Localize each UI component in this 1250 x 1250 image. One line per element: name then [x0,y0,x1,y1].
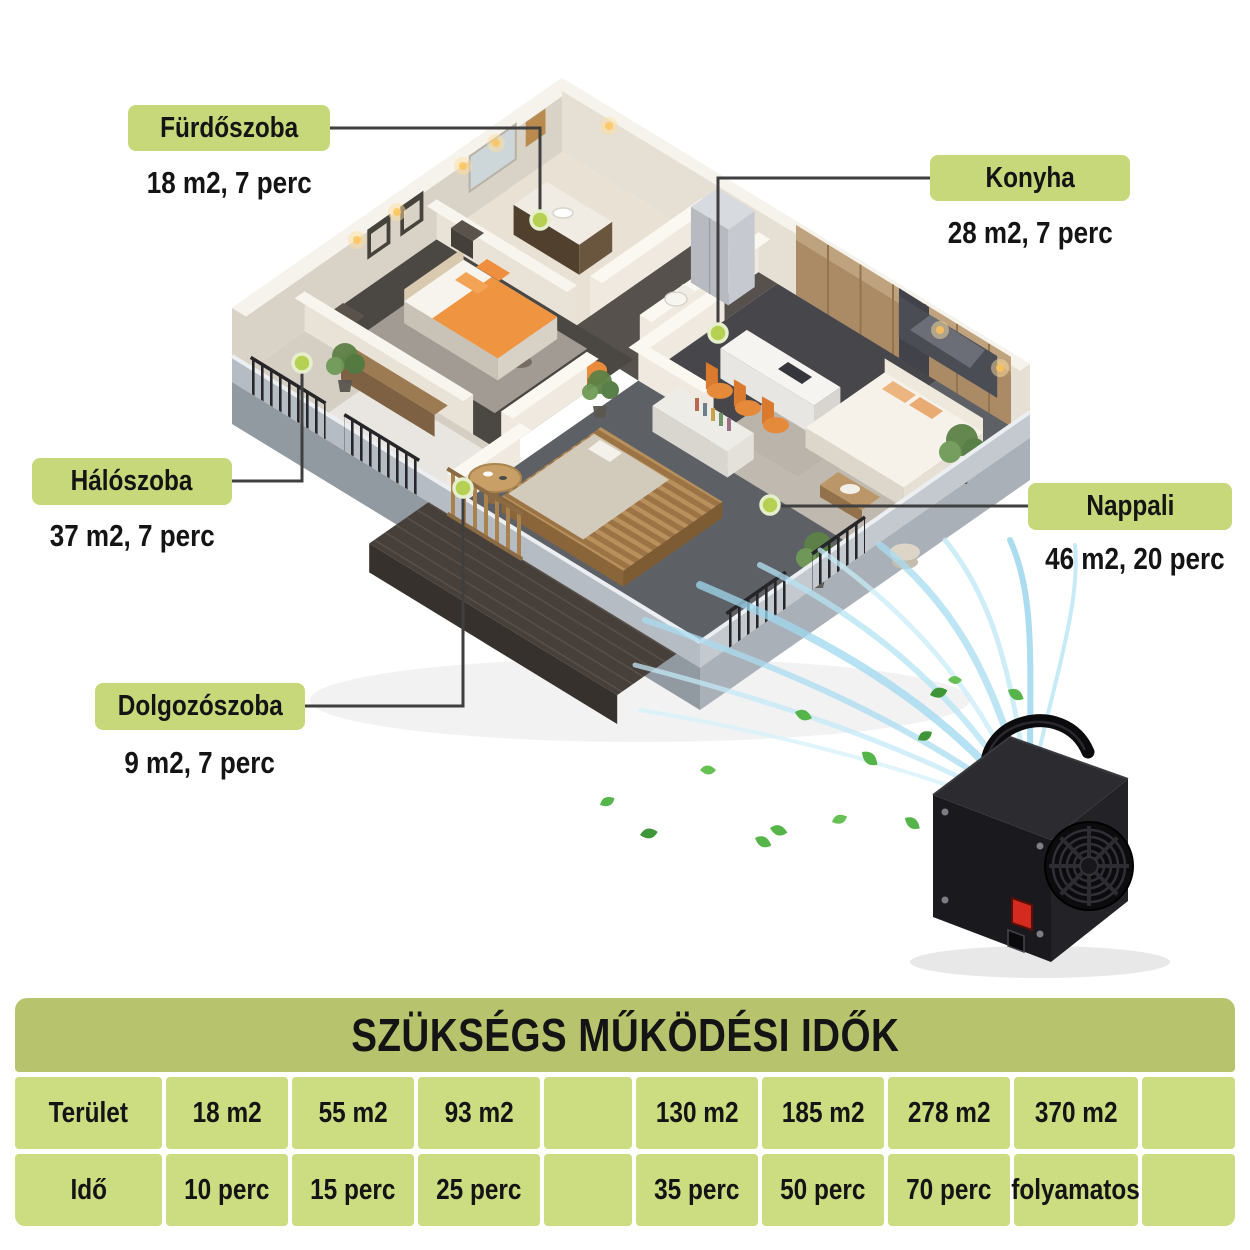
operation-times-table: SZÜKSÉGS MŰKÖDÉSI IDŐK Terület 18 m2 55 … [15,998,1235,1226]
table-cell: 93 m2 [418,1077,540,1149]
table-cell: 50 perc [762,1154,884,1226]
fan-grille-icon [1045,822,1133,910]
room-marker-konyha [709,324,727,342]
room-marker-nappali [761,496,779,514]
table-cell: 130 m2 [636,1077,758,1149]
room-marker-dolgozoszoba [454,479,472,497]
infographic-page: { "page": { "background": "#ffffff" }, "… [0,0,1250,1250]
table-grid: Terület 18 m2 55 m2 93 m2 130 m2 185 m2 … [15,1077,1235,1226]
table-cell: 370 m2 [1014,1077,1138,1149]
hall-wardrobe [691,188,755,305]
table-cell: 55 m2 [292,1077,414,1149]
table-cell: 15 perc [292,1154,414,1226]
table-cell: 35 perc [636,1154,758,1226]
table-title-text: SZÜKSÉGS MŰKÖDÉSI IDŐK [351,1008,899,1062]
table-cell: folyamatos [1014,1154,1138,1226]
table-cell-empty [544,1154,632,1226]
room-marker-haloszoba [293,354,311,372]
table-cell: 10 perc [166,1154,288,1226]
table-cell-empty [1142,1154,1235,1226]
table-cell-empty [544,1077,632,1149]
table-cell: 70 perc [888,1154,1010,1226]
table-cell: 18 m2 [166,1077,288,1149]
table-cell: 278 m2 [888,1077,1010,1149]
room-marker-furdoszoba [531,211,549,229]
table-cell: 25 perc [418,1154,540,1226]
table-cell-area-header: Terület [15,1077,162,1149]
table-title: SZÜKSÉGS MŰKÖDÉSI IDŐK [15,998,1235,1072]
table-cell: 185 m2 [762,1077,884,1149]
table-cell-time-header: Idő [15,1154,162,1226]
table-cell-empty [1142,1077,1235,1149]
